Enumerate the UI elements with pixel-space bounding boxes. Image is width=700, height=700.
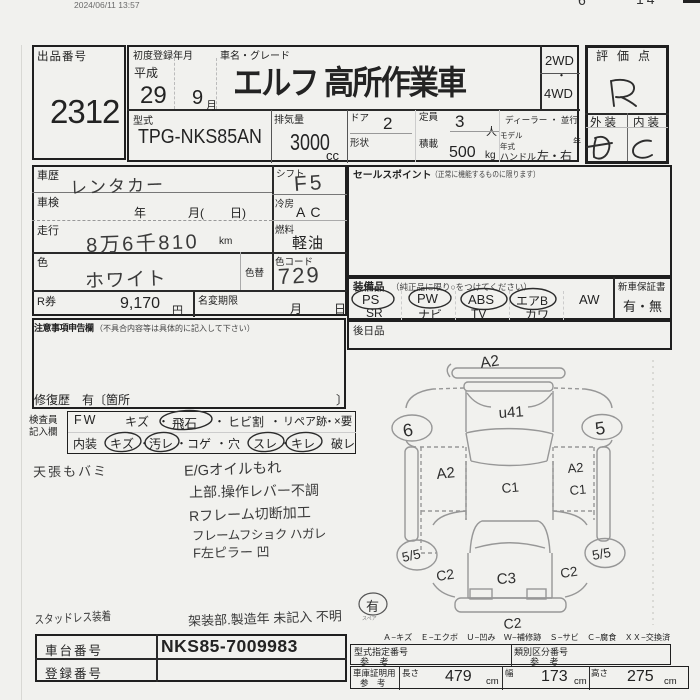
svg-text:A2: A2 bbox=[436, 464, 456, 483]
svg-text:5/5: 5/5 bbox=[401, 546, 422, 565]
svg-text:C2: C2 bbox=[435, 566, 455, 584]
svg-text:C2: C2 bbox=[559, 564, 578, 581]
svg-text:u41: u41 bbox=[498, 403, 524, 422]
svg-text:6: 6 bbox=[401, 420, 414, 441]
svg-text:C2: C2 bbox=[503, 614, 522, 632]
svg-text:C1: C1 bbox=[569, 482, 587, 498]
svg-text:5/5: 5/5 bbox=[591, 545, 612, 563]
svg-text:C3: C3 bbox=[496, 570, 516, 588]
svg-text:A2: A2 bbox=[567, 460, 584, 476]
svg-text:スペア: スペア bbox=[362, 616, 377, 622]
svg-text:5: 5 bbox=[594, 418, 607, 439]
svg-text:C1: C1 bbox=[501, 480, 520, 496]
svg-text:有: 有 bbox=[366, 599, 379, 614]
svg-text:A2: A2 bbox=[479, 352, 500, 371]
